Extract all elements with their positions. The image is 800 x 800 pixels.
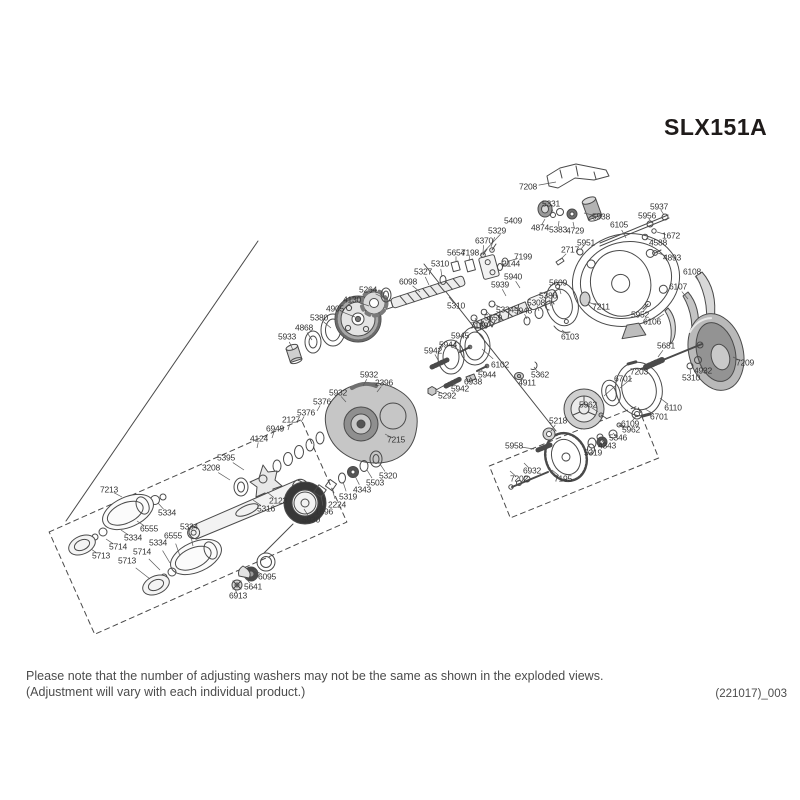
leader-line xyxy=(233,463,244,470)
leader-line xyxy=(509,259,518,261)
leader-line xyxy=(452,341,457,348)
leader-line xyxy=(121,530,128,535)
leader-line xyxy=(425,277,429,285)
leader-line xyxy=(613,433,616,436)
leader-line xyxy=(343,482,346,491)
footer-note-line1: Please note that the number of adjusting… xyxy=(26,668,603,684)
leader-line xyxy=(494,304,501,308)
leader-line xyxy=(136,568,150,579)
leader-line xyxy=(491,237,495,247)
leader-line xyxy=(106,539,113,544)
leader-line xyxy=(301,416,304,422)
leader-line xyxy=(542,219,545,225)
leader-line xyxy=(437,391,443,394)
leader-line xyxy=(524,463,529,468)
leader-line xyxy=(646,238,653,241)
leader-line xyxy=(522,447,534,449)
leader-line xyxy=(158,503,164,509)
leader-line xyxy=(657,232,666,234)
leader-line xyxy=(657,314,664,319)
leader-line xyxy=(539,182,556,185)
leader-line xyxy=(332,489,335,499)
leader-line xyxy=(502,289,506,296)
leader-line xyxy=(380,464,385,471)
leader-line xyxy=(658,350,663,357)
leader-line xyxy=(272,432,274,438)
leader-line xyxy=(516,281,520,288)
leader-line xyxy=(149,559,160,570)
leader-line xyxy=(480,369,484,373)
leader-line xyxy=(480,234,500,256)
leader-line xyxy=(573,222,574,228)
leader-line xyxy=(558,221,559,227)
leader-line xyxy=(661,210,664,215)
leader-line xyxy=(483,245,484,252)
leader-line xyxy=(660,398,668,404)
leader-line xyxy=(218,473,230,480)
footer-note: Please note that the number of adjusting… xyxy=(26,668,603,700)
leader-line xyxy=(510,471,516,476)
page-title: SLX151A xyxy=(664,114,767,141)
document-code: (221017)_003 xyxy=(715,688,787,700)
leader-line xyxy=(91,549,97,553)
footer-note-line2: (Adjustment will vary with each individu… xyxy=(26,684,603,700)
parts-diagram-page: 7208533159384874538347296105595659371672… xyxy=(0,0,800,800)
leader-line xyxy=(355,476,359,485)
leader-line xyxy=(581,245,584,249)
leader-line xyxy=(257,442,258,448)
leader-line xyxy=(317,405,320,411)
leader-line xyxy=(559,287,561,294)
leader-line xyxy=(163,551,170,563)
leader-line xyxy=(367,470,372,478)
leader-line xyxy=(114,493,122,497)
